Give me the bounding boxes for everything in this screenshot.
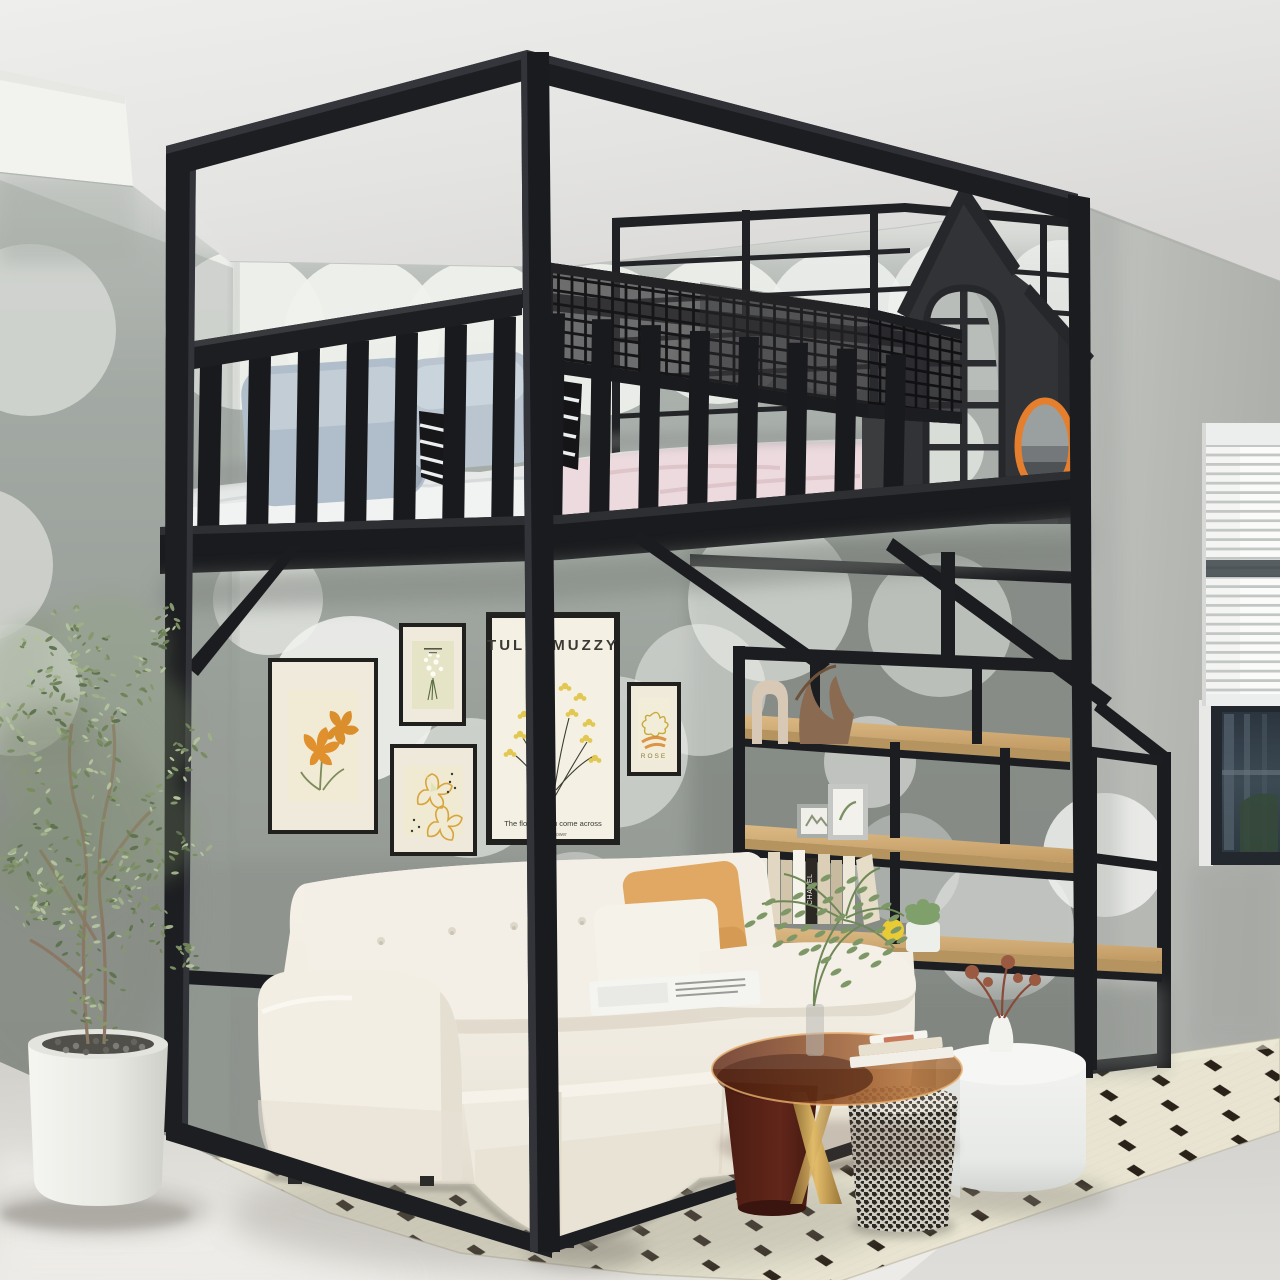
svg-text:ROSE: ROSE bbox=[641, 753, 667, 760]
